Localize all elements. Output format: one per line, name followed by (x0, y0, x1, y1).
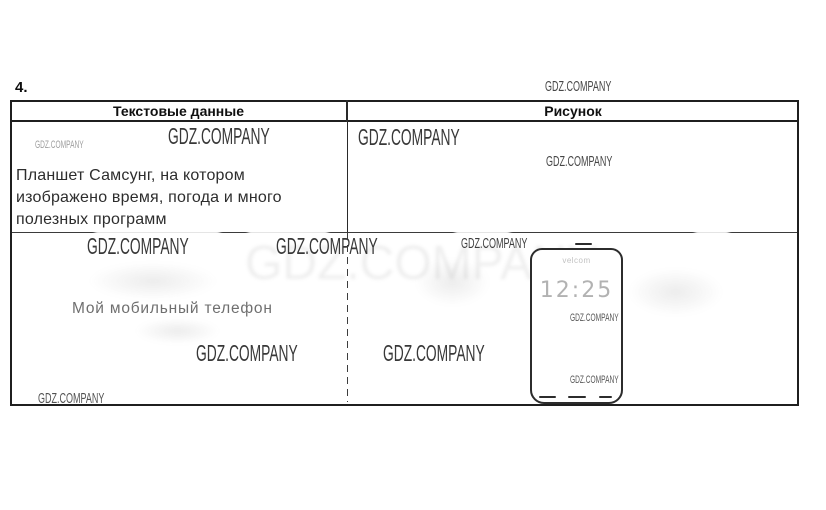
watermark: GDZ.COMPANY (168, 125, 270, 148)
phone-time: 12:25 (532, 278, 621, 303)
watermark: GDZ.COMPANY (87, 235, 189, 258)
phone-back-button (539, 396, 556, 398)
watermark: GDZ.COMPANY (383, 342, 485, 365)
watermark: GDZ.COMPANY (196, 342, 298, 365)
answer-text-row2: Мой мобильный телефон (72, 300, 273, 318)
watermark: GDZ.COMPANY (545, 79, 611, 94)
watermark: GDZ.COMPANY (38, 391, 104, 406)
divider-erasure (695, 229, 729, 236)
table-column-divider (347, 122, 348, 232)
answer-text-line: полезных программ (16, 209, 341, 231)
answer-text-line: Планшет Самсунг, на котором (16, 165, 341, 187)
table-header-text-data: Текстовые данные (10, 100, 347, 122)
table-header-picture: Рисунок (347, 100, 799, 122)
phone-drawing: velcom 12:25 GDZ.COMPANY GDZ.COMPANY (530, 248, 623, 404)
phone-home-button (568, 396, 586, 398)
watermark: GDZ.COMPANY (276, 235, 378, 258)
watermark: GDZ.COMPANY (35, 140, 84, 151)
answer-text-line: изображено время, погода и много (16, 187, 341, 209)
watermark: GDZ.COMPANY (570, 375, 619, 386)
answer-text-row1: Планшет Самсунг, на котором изображено в… (16, 165, 341, 231)
watermark: GDZ.COMPANY (358, 126, 460, 149)
item-number: 4. (15, 79, 28, 96)
phone-speaker (575, 243, 592, 245)
phone-status-text: velcom (532, 256, 621, 265)
watermark: GDZ.COMPANY (570, 313, 619, 324)
watermark: GDZ.COMPANY (546, 154, 612, 169)
phone-menu-button (599, 396, 612, 398)
document-page: 4. GDZ.COMPANY GDZ.COMPANY Текстовые дан… (0, 0, 826, 510)
watermark: GDZ.COMPANY (461, 236, 527, 251)
